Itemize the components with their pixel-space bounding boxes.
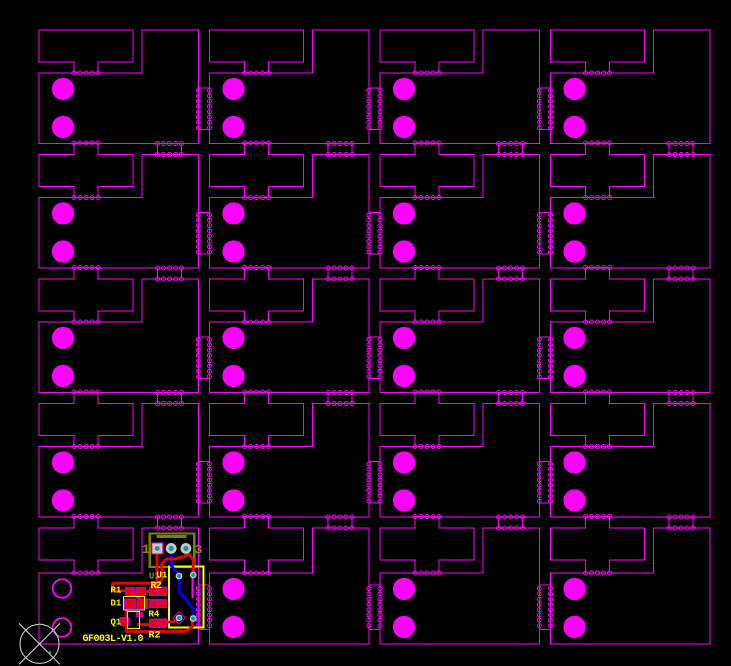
svg-text:R4: R4	[149, 610, 160, 620]
svg-text:R2: R2	[151, 581, 162, 592]
svg-text:3: 3	[195, 543, 203, 558]
svg-text:D1: D1	[111, 599, 122, 609]
svg-text:Q1: Q1	[111, 618, 122, 628]
svg-text:R2: R2	[149, 631, 161, 642]
svg-text:U1: U1	[157, 571, 168, 581]
svg-text:R1: R1	[111, 586, 122, 596]
svg-text:1: 1	[142, 542, 150, 557]
svg-text:GF003L-V1.0: GF003L-V1.0	[83, 634, 144, 645]
